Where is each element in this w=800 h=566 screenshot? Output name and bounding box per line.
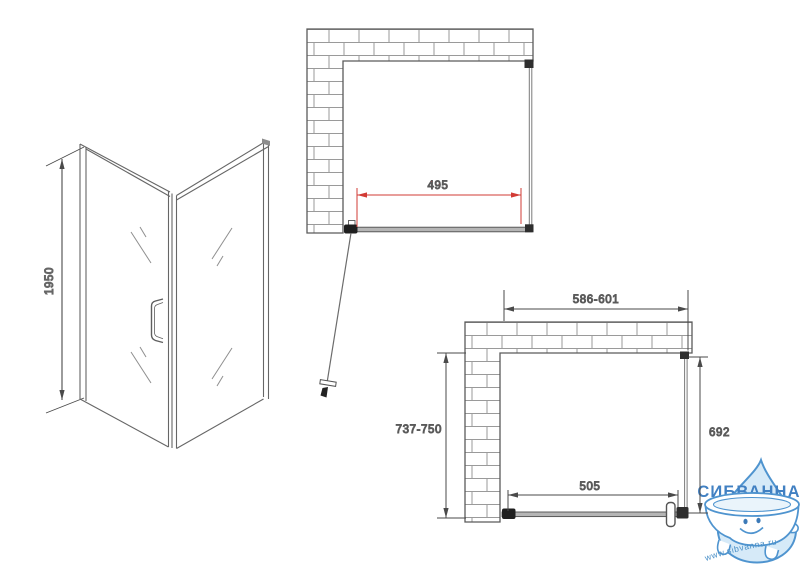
brick-wall [465,322,692,522]
height-dimension-label: 1950 [44,267,56,295]
door-width-dimension-label: 505 [580,481,601,493]
door-closed [346,227,532,232]
door-end-cap [525,224,534,232]
shower-enclosure-technical-drawing: 1950 [0,0,800,566]
overall-depth-dimension-label: 737-750 [396,424,442,436]
brick-wall [307,29,533,233]
plan-view-bottom: 586-601 737-750 692 505 [396,290,730,527]
door-hinge [502,509,516,520]
side-view-3d: 1950 [44,139,270,449]
watermark-logo: СИБВАННА www.sibvanna.ru [697,460,800,563]
door-handle-3d [152,299,164,343]
enclosure-frame [80,139,270,449]
door-hinge [344,221,358,234]
corner-connector [677,507,689,519]
overall-width-dimension-label: 586-601 [573,294,619,306]
glass-reflection-marks [131,227,232,386]
door-width-dimension [508,490,678,511]
wall-profile-connector [525,60,534,69]
fixed-glass-panel [529,67,532,227]
door-width-dimension [357,188,521,227]
door-width-dimension-label: 495 [428,180,449,192]
glass-depth-dimension-label: 692 [709,427,730,439]
swing-door-handle [320,380,336,387]
door-closed [502,512,680,517]
door-open-swing [320,233,351,398]
fixed-glass-panel [685,357,688,512]
door-handle [667,503,676,527]
tub-opening [714,498,791,512]
wall-profile-connector [680,352,689,360]
